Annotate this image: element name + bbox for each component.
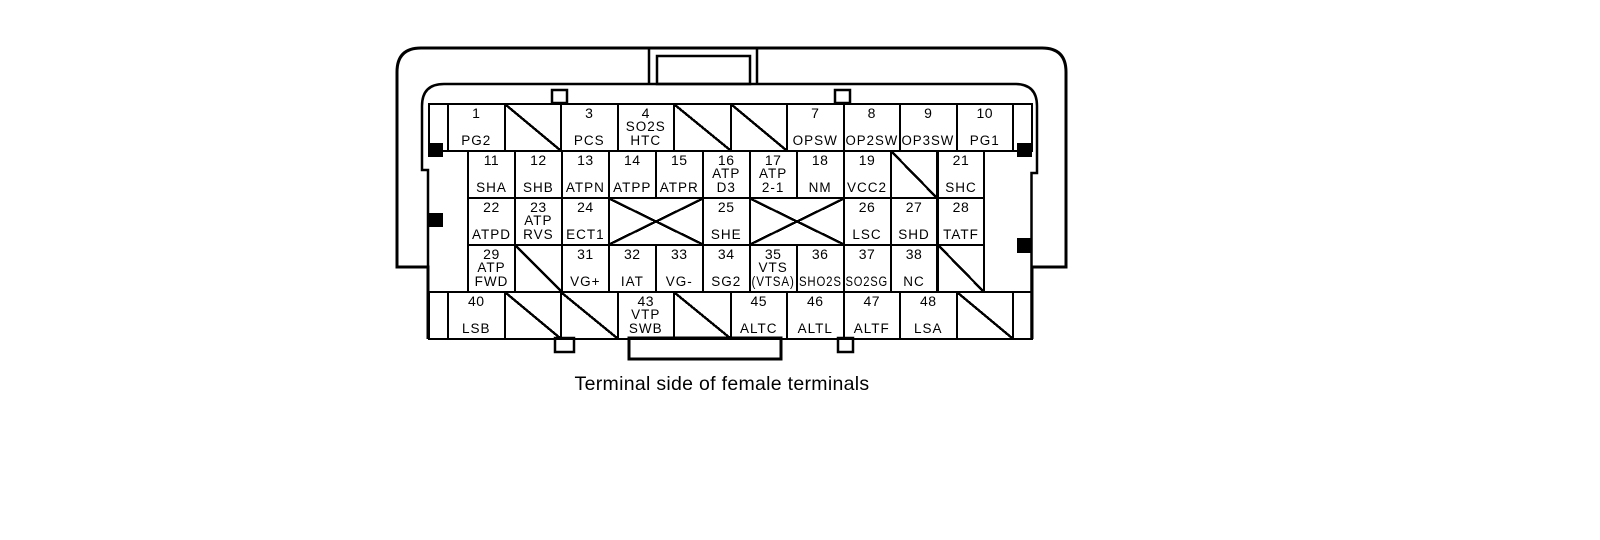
terminal-cell-31: 31VG+	[561, 244, 610, 293]
terminal-cell-28: 28TATF	[937, 197, 986, 246]
terminal-label: LSC	[852, 228, 881, 242]
terminal-label: LSB	[462, 322, 491, 336]
terminal-number: 31	[577, 247, 594, 261]
terminal-cell-47: 47ALTF	[843, 291, 902, 340]
terminal-cell-8: 8OP2SW	[843, 103, 902, 152]
terminal-label: ALTF	[854, 322, 890, 336]
terminal-number: 18	[812, 153, 829, 167]
blocked-cavity-cross	[608, 197, 704, 246]
terminal-cell-48: 48LSA	[899, 291, 958, 340]
terminal-number: 32	[624, 247, 641, 261]
terminal-number: 27	[906, 200, 923, 214]
terminal-cell-25: 25SHE	[702, 197, 751, 246]
latch-square-right-lower	[1017, 238, 1032, 253]
edge-filler-cell	[428, 103, 449, 152]
terminal-number: 26	[859, 200, 876, 214]
terminal-label: SO2S	[626, 120, 666, 134]
terminal-label: FWD	[475, 275, 509, 289]
edge-filler-cell	[428, 291, 449, 340]
connector-pinout-diagram: 1PG23PCS4SO2SHTC7OPSW8OP2SW9OP3SW10PG111…	[0, 0, 1600, 540]
terminal-number: 36	[812, 247, 829, 261]
terminal-label: ATPN	[566, 181, 605, 195]
bottom-alignment-tab-left	[555, 338, 574, 352]
blocked-cavity-diagonal	[937, 244, 986, 293]
terminal-cell-17: 17ATP2-1	[749, 150, 798, 199]
blocked-cavity-diagonal	[514, 244, 563, 293]
terminal-label: SG2	[711, 275, 741, 289]
terminal-label: SHO2S	[799, 275, 842, 289]
terminal-label: VTP	[631, 308, 660, 322]
terminal-cell-9: 9OP3SW	[899, 103, 958, 152]
terminal-label: OPSW	[793, 134, 838, 148]
terminal-number: 16	[718, 153, 735, 167]
terminal-label: RVS	[523, 228, 554, 242]
terminal-cell-35: 35VTS(VTSA)	[749, 244, 798, 293]
terminal-label: SHC	[945, 181, 977, 195]
terminal-cell-26: 26LSC	[843, 197, 892, 246]
terminal-label: SHB	[523, 181, 554, 195]
terminal-number: 14	[624, 153, 641, 167]
terminal-cell-43: 43VTPSWB	[617, 291, 676, 340]
blocked-cavity-diagonal	[504, 103, 563, 152]
terminal-label: VCC2	[847, 181, 887, 195]
terminal-label: D3	[717, 181, 736, 195]
terminal-number: 29	[483, 247, 500, 261]
terminal-label: ALTL	[798, 322, 833, 336]
terminal-label: ATP	[524, 214, 552, 228]
terminal-number: 7	[811, 106, 819, 120]
terminal-label: VG+	[570, 275, 600, 289]
terminal-number: 10	[976, 106, 993, 120]
terminal-label: TATF	[943, 228, 979, 242]
terminal-cell-27: 27SHD	[890, 197, 939, 246]
terminal-label: PG2	[461, 134, 491, 148]
edge-filler-cell	[1012, 291, 1033, 340]
terminal-label: SHE	[711, 228, 742, 242]
terminal-number: 21	[953, 153, 970, 167]
terminal-number: 34	[718, 247, 735, 261]
terminal-cell-19: 19VCC2	[843, 150, 892, 199]
terminal-cell-4: 4SO2SHTC	[617, 103, 676, 152]
terminal-label: (VTSA)	[752, 275, 795, 289]
terminal-label: IAT	[621, 275, 644, 289]
blocked-cavity-diagonal	[504, 291, 563, 340]
terminal-number: 19	[859, 153, 876, 167]
terminal-label: ATP	[477, 261, 505, 275]
bottom-wide-tab	[629, 338, 781, 359]
bottom-alignment-tab-right	[838, 338, 853, 352]
terminal-label: SHA	[476, 181, 507, 195]
terminal-cell-7: 7OPSW	[786, 103, 845, 152]
terminal-label: ATP	[759, 167, 787, 181]
terminal-number: 45	[750, 294, 767, 308]
terminal-number: 38	[906, 247, 923, 261]
terminal-number: 22	[483, 200, 500, 214]
blocked-cavity-diagonal	[673, 103, 732, 152]
top-tab-outline	[649, 48, 757, 84]
terminal-cell-46: 46ALTL	[786, 291, 845, 340]
terminal-cell-36: 36SHO2S	[796, 244, 845, 293]
terminal-number: 1	[472, 106, 480, 120]
terminal-label: 2-1	[762, 181, 785, 195]
top-tab-inner-rect	[657, 56, 750, 84]
terminal-number: 23	[530, 200, 547, 214]
terminal-cell-12: 12SHB	[514, 150, 563, 199]
terminal-cell-18: 18NM	[796, 150, 845, 199]
latch-square-left-lower	[428, 213, 443, 227]
terminal-label: PCS	[574, 134, 605, 148]
terminal-label: NM	[809, 181, 832, 195]
blocked-cavity-diagonal	[560, 291, 619, 340]
terminal-cell-29: 29ATPFWD	[467, 244, 516, 293]
terminal-label: ATPP	[613, 181, 651, 195]
terminal-cell-34: 34SG2	[702, 244, 751, 293]
terminal-number: 25	[718, 200, 735, 214]
terminal-cell-38: 38NC	[890, 244, 939, 293]
terminal-label: ECT1	[566, 228, 605, 242]
terminal-number: 24	[577, 200, 594, 214]
terminal-number: 40	[468, 294, 485, 308]
terminal-cell-24: 24ECT1	[561, 197, 610, 246]
terminal-label: ATPR	[660, 181, 699, 195]
terminal-label: NC	[903, 275, 925, 289]
terminal-cell-22: 22ATPD	[467, 197, 516, 246]
terminal-label: PG1	[970, 134, 1000, 148]
terminal-number: 11	[484, 153, 500, 167]
terminal-cell-11: 11SHA	[467, 150, 516, 199]
terminal-number: 47	[863, 294, 880, 308]
terminal-number: 9	[924, 106, 932, 120]
terminal-number: 17	[765, 153, 782, 167]
blocked-cavity-cross	[749, 197, 845, 246]
terminal-number: 48	[920, 294, 937, 308]
terminal-cell-14: 14ATPP	[608, 150, 657, 199]
terminal-cell-45: 45ALTC	[730, 291, 789, 340]
terminal-cell-37: 37SO2SG	[843, 244, 892, 293]
terminal-number: 8	[868, 106, 876, 120]
top-alignment-tab-right	[835, 90, 850, 103]
terminal-cell-1: 1PG2	[447, 103, 506, 152]
blocked-cavity-diagonal	[956, 291, 1015, 340]
terminal-label: OP3SW	[902, 134, 955, 148]
terminal-cell-10: 10PG1	[956, 103, 1015, 152]
terminal-cell-13: 13ATPN	[561, 150, 610, 199]
terminal-label: LSA	[914, 322, 943, 336]
blocked-cavity-diagonal	[890, 150, 939, 199]
terminal-cell-3: 3PCS	[560, 103, 619, 152]
terminal-cell-33: 33VG-	[655, 244, 704, 293]
terminal-cell-40: 40LSB	[447, 291, 506, 340]
terminal-number: 12	[530, 153, 547, 167]
terminal-cell-23: 23ATPRVS	[514, 197, 563, 246]
terminal-number: 35	[765, 247, 782, 261]
terminal-label: ATPD	[472, 228, 511, 242]
terminal-number: 46	[807, 294, 824, 308]
terminal-cell-21: 21SHC	[937, 150, 986, 199]
terminal-number: 15	[671, 153, 688, 167]
terminal-number: 33	[671, 247, 688, 261]
terminal-number: 4	[642, 106, 650, 120]
terminal-label: SWB	[629, 322, 663, 336]
terminal-number: 37	[859, 247, 876, 261]
terminal-cell-15: 15ATPR	[655, 150, 704, 199]
terminal-label: HTC	[630, 134, 661, 148]
diagram-caption: Terminal side of female terminals	[447, 373, 997, 396]
terminal-cell-32: 32IAT	[608, 244, 657, 293]
terminal-label: SHD	[898, 228, 930, 242]
terminal-label: VTS	[759, 261, 788, 275]
terminal-label: ATP	[712, 167, 740, 181]
terminal-label: OP2SW	[845, 134, 898, 148]
blocked-cavity-diagonal	[730, 103, 789, 152]
terminal-number: 43	[637, 294, 654, 308]
terminal-number: 3	[585, 106, 593, 120]
terminal-label: VG-	[666, 275, 693, 289]
terminal-label: ALTC	[740, 322, 778, 336]
terminal-number: 13	[577, 153, 594, 167]
blocked-cavity-diagonal	[673, 291, 732, 340]
terminal-number: 28	[953, 200, 970, 214]
terminal-cell-16: 16ATPD3	[702, 150, 751, 199]
top-alignment-tab-left	[552, 90, 567, 103]
terminal-label: SO2SG	[846, 275, 889, 289]
edge-filler-cell	[1012, 103, 1033, 152]
